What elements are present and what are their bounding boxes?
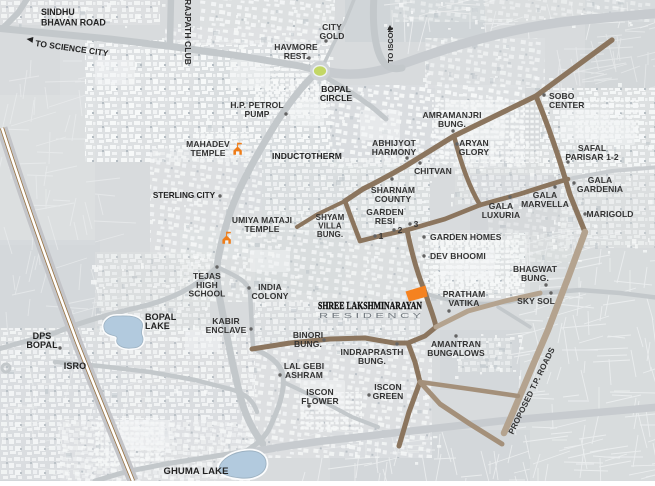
svg-text:2: 2	[398, 225, 403, 235]
svg-text:ABHIJYOTHARMONY: ABHIJYOTHARMONY	[372, 138, 417, 157]
svg-text:CITYGOLD: CITYGOLD	[320, 22, 345, 41]
svg-text:TO ISCON: TO ISCON	[386, 27, 395, 63]
svg-text:SKY SOL: SKY SOL	[517, 296, 555, 306]
svg-text:AMANTRANBUNGALOWS: AMANTRANBUNGALOWS	[427, 339, 485, 358]
svg-text:GARDEN HOMES: GARDEN HOMES	[430, 232, 502, 242]
svg-text:ARYANGLORY: ARYANGLORY	[459, 138, 490, 157]
svg-text:CHITVAN: CHITVAN	[414, 166, 452, 176]
svg-text:MARIGOLD: MARIGOLD	[586, 209, 633, 219]
svg-text:LAL GEBIASHRAM: LAL GEBIASHRAM	[284, 361, 324, 380]
svg-text:GHUMA LAKE: GHUMA LAKE	[163, 466, 228, 477]
svg-text:SHARNAMCOUNTY: SHARNAMCOUNTY	[371, 185, 415, 204]
svg-text:ISRO: ISRO	[64, 361, 86, 371]
svg-text:1: 1	[379, 231, 384, 241]
svg-text:ISCONFLOWER: ISCONFLOWER	[301, 387, 338, 406]
svg-text:BINORIBUNG.: BINORIBUNG.	[293, 330, 323, 349]
svg-text:DEV BHOOMI: DEV BHOOMI	[430, 251, 486, 261]
svg-text:INDUCTOTHERM: INDUCTOTHERM	[272, 151, 342, 161]
svg-text:R E S I D E N C Y: R E S I D E N C Y	[319, 313, 422, 320]
svg-text:MAHADEVTEMPLE: MAHADEVTEMPLE	[186, 139, 230, 158]
svg-text:RAJPATH CLUB: RAJPATH CLUB	[183, 0, 193, 65]
svg-text:STERLING CITY: STERLING CITY	[153, 191, 216, 200]
svg-text:SHYAMVILLABUNG.: SHYAMVILLABUNG.	[316, 213, 345, 239]
svg-text:BOPALCIRCLE: BOPALCIRCLE	[320, 84, 353, 103]
svg-text:SHREE LAKSHMINARAYAN: SHREE LAKSHMINARAYAN	[318, 300, 422, 312]
svg-text:3: 3	[414, 219, 419, 229]
svg-text:PRATHAMVATIKA: PRATHAMVATIKA	[443, 289, 486, 308]
svg-text:ISCONGREEN: ISCONGREEN	[373, 382, 404, 401]
